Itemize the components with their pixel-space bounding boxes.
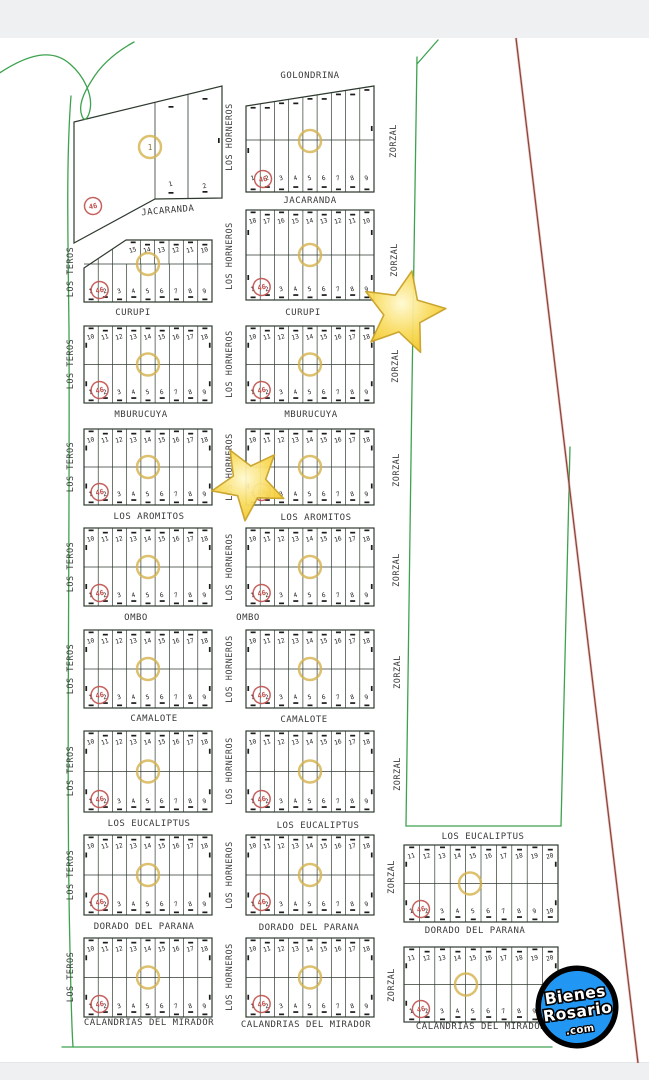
frontage-tick: [322, 330, 327, 332]
frontage-tick: [209, 545, 211, 550]
street-label-vertical: LOS TEROS: [66, 952, 76, 1003]
frontage-tick: [251, 733, 256, 735]
frontage-tick: [146, 940, 151, 942]
frontage-tick: [322, 1011, 327, 1013]
street-label: CURUPI: [285, 308, 321, 318]
frontage-tick: [308, 400, 313, 402]
frontage-tick: [350, 214, 355, 216]
street-label-vertical: LOS HORNEROS: [225, 533, 235, 600]
frontage-tick: [188, 702, 193, 704]
frontage-tick: [188, 806, 193, 808]
frontage-tick: [160, 433, 165, 435]
frontage-tick: [85, 893, 87, 898]
frontage-tick: [548, 849, 553, 851]
frontage-tick: [308, 530, 313, 532]
frontage-tick: [409, 847, 414, 849]
frontage-tick: [247, 647, 249, 652]
frontage-tick: [486, 1016, 491, 1018]
frontage-tick: [174, 733, 179, 735]
stamp-number: 46: [257, 898, 267, 908]
street-label: CURUPI: [115, 308, 151, 318]
frontage-tick: [371, 995, 373, 1000]
blocks-layer: 1214612345678946151413121110123456789461…: [74, 86, 558, 1022]
frontage-tick: [131, 242, 136, 244]
frontage-tick: [336, 912, 341, 914]
frontage-tick: [336, 705, 341, 707]
frontage-tick: [279, 603, 284, 605]
frontage-tick: [251, 297, 256, 299]
frontage-tick: [405, 963, 407, 968]
frontage-tick: [251, 431, 256, 433]
frontage-tick: [247, 789, 249, 794]
frontage-tick: [364, 705, 369, 707]
frontage-tick: [174, 1014, 179, 1016]
frontage-tick: [146, 431, 151, 433]
frontage-tick: [209, 749, 211, 754]
frontage-tick: [202, 632, 207, 634]
frontage-tick: [293, 702, 298, 704]
frontage-tick: [308, 212, 313, 214]
stamp-number: 46: [257, 283, 267, 293]
stamp-number: 46: [416, 905, 426, 915]
block-7-left: 10111213141516171812345678946: [84, 731, 212, 812]
frontage-tick: [160, 1011, 165, 1013]
frontage-tick: [425, 951, 430, 953]
frontage-tick: [202, 809, 207, 811]
block-5-left: 10111213141516171812345678946: [84, 528, 212, 606]
block-9-right: 10111213141516171812345678946: [246, 938, 374, 1017]
frontage-tick: [117, 530, 122, 532]
frontage-tick: [371, 446, 373, 451]
frontage-tick: [336, 809, 341, 811]
frontage-tick: [371, 686, 373, 691]
frontage-tick: [146, 328, 151, 330]
frontage-tick: [425, 849, 430, 851]
frontage-tick: [279, 940, 284, 942]
frontage-tick: [471, 1019, 476, 1021]
frontage-tick: [293, 634, 298, 636]
frontage-tick: [202, 244, 207, 246]
frontage-tick: [209, 446, 211, 451]
frontage-tick: [471, 847, 476, 849]
street-label-vertical: LOS TEROS: [66, 746, 76, 797]
frontage-tick: [293, 806, 298, 808]
frontage-tick: [202, 733, 207, 735]
frontage-tick: [502, 1019, 507, 1021]
stamp-number: 46: [416, 1005, 426, 1015]
frontage-tick: [336, 502, 341, 504]
frontage-tick: [293, 735, 298, 737]
frontage-tick: [279, 733, 284, 735]
frontage-tick: [336, 328, 341, 330]
frontage-tick: [85, 584, 87, 589]
frontage-tick: [293, 433, 298, 435]
frontage-tick: [251, 530, 256, 532]
frontage-tick: [117, 705, 122, 707]
frontage-tick: [89, 328, 94, 330]
frontage-tick: [265, 942, 270, 944]
frontage-tick: [85, 343, 87, 348]
frontage-tick: [85, 545, 87, 550]
frontage-tick: [308, 189, 313, 191]
frontage-tick: [336, 837, 341, 839]
frontage-tick: [188, 397, 193, 399]
frontage-tick: [308, 837, 313, 839]
frontage-tick: [103, 839, 108, 841]
frontage-tick: [308, 632, 313, 634]
frontage-tick: [486, 916, 491, 918]
frontage-tick: [209, 686, 211, 691]
frontage-tick: [247, 381, 249, 386]
frontage-tick: [247, 275, 249, 280]
frontage-tick: [308, 297, 313, 299]
frontage-tick: [146, 400, 151, 402]
zorzal-boundary: [406, 57, 417, 826]
frontage-tick: [471, 919, 476, 921]
frontage-tick: [117, 431, 122, 433]
frontage-tick: [188, 909, 193, 911]
frontage-tick: [350, 532, 355, 534]
street-label-vertical: ZORZAL: [393, 757, 403, 791]
frontage-tick: [89, 603, 94, 605]
frontage-tick: [308, 603, 313, 605]
frontage-tick: [293, 600, 298, 602]
frontage-tick: [322, 433, 327, 435]
frontage-tick: [293, 103, 298, 105]
street-label-vertical: ZORZAL: [389, 124, 399, 158]
frontage-tick: [103, 735, 108, 737]
frontage-tick: [265, 532, 270, 534]
frontage-tick: [117, 632, 122, 634]
frontage-tick: [203, 191, 208, 193]
frontage-tick: [409, 919, 414, 921]
frontage-tick: [117, 912, 122, 914]
frontage-tick: [131, 806, 136, 808]
frontage-tick: [188, 839, 193, 841]
frontage-tick: [251, 912, 256, 914]
frontage-tick: [308, 733, 313, 735]
frontage-tick: [174, 502, 179, 504]
frontage-tick: [131, 397, 136, 399]
frontage-tick: [174, 328, 179, 330]
frontage-tick: [202, 912, 207, 914]
frontage-tick: [202, 603, 207, 605]
frontage-tick: [89, 809, 94, 811]
stamp-number: 46: [95, 1000, 105, 1010]
frontage-tick: [131, 839, 136, 841]
frontage-tick: [279, 400, 284, 402]
frontage-tick: [202, 705, 207, 707]
frontage-tick: [146, 912, 151, 914]
frontage-tick: [293, 186, 298, 188]
frontage-tick: [350, 600, 355, 602]
frontage-tick: [517, 849, 522, 851]
frontage-tick: [350, 186, 355, 188]
frontage-tick: [364, 400, 369, 402]
frontage-tick: [440, 949, 445, 951]
frontage-tick: [350, 634, 355, 636]
frontage-tick: [308, 431, 313, 433]
frontage-tick: [85, 789, 87, 794]
street-label-vertical: ZORZAL: [390, 243, 400, 277]
stamp-number: 46: [95, 386, 105, 396]
frontage-tick: [532, 1019, 537, 1021]
frontage-tick: [265, 330, 270, 332]
frontage-tick: [371, 584, 373, 589]
frontage-tick: [265, 735, 270, 737]
frontage-tick: [364, 530, 369, 532]
frontage-tick: [409, 949, 414, 951]
frontage-tick: [371, 789, 373, 794]
frontage-tick: [131, 532, 136, 534]
frontage-tick: [251, 328, 256, 330]
frontage-tick: [188, 433, 193, 435]
frontage-tick: [89, 632, 94, 634]
frontage-tick: [322, 214, 327, 216]
frontage-tick: [131, 735, 136, 737]
frontage-tick: [202, 328, 207, 330]
frontage-tick: [364, 1014, 369, 1016]
frontage-tick: [247, 230, 249, 235]
frontage-tick: [371, 545, 373, 550]
frontage-tick: [160, 735, 165, 737]
frontage-tick: [336, 530, 341, 532]
frontage-tick: [174, 431, 179, 433]
frontage-tick: [160, 839, 165, 841]
frontage-tick: [174, 705, 179, 707]
frontage-tick: [160, 499, 165, 501]
block-8-left: 10111213141516171812345678946: [84, 835, 212, 915]
frontage-tick: [336, 189, 341, 191]
frontage-tick: [85, 484, 87, 489]
street-label: LOS EUCALIPTUS: [108, 819, 191, 829]
block-3-right: 10111213141516171812345678946: [246, 326, 374, 403]
block-4-left: 10111213141516171812345678946: [84, 429, 212, 505]
frontage-tick: [146, 1014, 151, 1016]
stamp-number: 46: [95, 589, 105, 599]
frontage-tick: [350, 942, 355, 944]
frontage-tick: [247, 686, 249, 691]
frontage-tick: [548, 951, 553, 953]
frontage-tick: [548, 916, 553, 918]
frontage-tick: [209, 853, 211, 858]
frontage-tick: [336, 431, 341, 433]
meander: [0, 42, 134, 119]
frontage-tick: [308, 328, 313, 330]
frontage-tick: [89, 705, 94, 707]
stamp-number: 46: [88, 202, 98, 212]
frontage-tick: [371, 230, 373, 235]
street-label-vertical: LOS HORNEROS: [225, 635, 235, 702]
frontage-tick: [364, 837, 369, 839]
frontage-tick: [532, 919, 537, 921]
frontage-tick: [209, 995, 211, 1000]
screenshot-root: 1214612345678946151413121110123456789461…: [0, 0, 649, 1080]
frontage-tick: [169, 192, 174, 194]
frontage-tick: [251, 809, 256, 811]
frontage-tick: [131, 600, 136, 602]
frontage-tick: [247, 893, 249, 898]
frontage-tick: [202, 502, 207, 504]
frontage-tick: [279, 705, 284, 707]
block-3-left: 10111213141516171812345678946: [84, 326, 212, 403]
frontage-tick: [279, 212, 284, 214]
block-2-left: 15141312111012345678946: [84, 240, 212, 302]
frontage-tick: [555, 862, 557, 867]
block-5-right: 10111213141516171812345678946: [246, 528, 374, 606]
frontage-tick: [371, 955, 373, 960]
frontage-tick: [336, 632, 341, 634]
frontage-tick: [293, 294, 298, 296]
frontage-tick: [160, 600, 165, 602]
frontage-tick: [169, 106, 174, 108]
frontage-tick: [89, 1014, 94, 1016]
street-label-vertical: ZORZAL: [391, 349, 401, 383]
frontage-tick: [89, 299, 94, 301]
frontage-tick: [350, 330, 355, 332]
frontage-tick: [89, 912, 94, 914]
frontage-tick: [364, 89, 369, 91]
frontage-tick: [131, 909, 136, 911]
frontage-tick: [202, 1014, 207, 1016]
frontage-tick: [146, 632, 151, 634]
street-label-vertical: LOS HORNEROS: [225, 841, 235, 908]
frontage-tick: [203, 98, 208, 100]
frontage-tick: [279, 328, 284, 330]
frontage-tick: [117, 809, 122, 811]
frontage-tick: [247, 545, 249, 550]
frontage-tick: [350, 839, 355, 841]
frontage-tick: [308, 809, 313, 811]
frontage-tick: [85, 995, 87, 1000]
frontage-tick: [364, 502, 369, 504]
frontage-tick: [350, 702, 355, 704]
frontage-tick: [174, 912, 179, 914]
frontage-tick: [247, 749, 249, 754]
frontage-tick: [279, 297, 284, 299]
frontage-tick: [293, 397, 298, 399]
frontage-tick: [117, 502, 122, 504]
frontage-tick: [247, 995, 249, 1000]
street-label-vertical: LOS HORNEROS: [225, 943, 235, 1010]
frontage-tick: [209, 789, 211, 794]
frontage-tick: [160, 634, 165, 636]
frontage-tick: [293, 214, 298, 216]
stamp-number: 46: [95, 795, 105, 805]
frontage-tick: [350, 806, 355, 808]
frontage-tick: [279, 502, 284, 504]
frontage-tick: [532, 847, 537, 849]
frontage-tick: [174, 244, 179, 246]
street-label: DORADO DEL PARANA: [94, 922, 195, 932]
frontage-tick: [247, 148, 249, 153]
street-label: LOS AROMITOS: [280, 513, 351, 523]
frontage-tick: [350, 1011, 355, 1013]
frontage-tick: [103, 532, 108, 534]
frontage-tick: [322, 909, 327, 911]
frontage-tick: [555, 963, 557, 968]
frontage-tick: [146, 705, 151, 707]
frontage-tick: [502, 847, 507, 849]
stamp-number: 46: [257, 386, 267, 396]
frontage-tick: [293, 532, 298, 534]
frontage-tick: [117, 837, 122, 839]
frontage-tick: [209, 955, 211, 960]
street-label-vertical: LOS TEROS: [66, 442, 76, 493]
frontage-tick: [131, 702, 136, 704]
frontage-tick: [247, 343, 249, 348]
frontage-tick: [265, 839, 270, 841]
frontage-tick: [405, 900, 407, 905]
frontage-tick: [364, 297, 369, 299]
frontage-tick: [336, 400, 341, 402]
street-label: CALANDRIAS DEL MIRADOR: [84, 1018, 214, 1028]
street-label: CALANDRIAS DEL MIRADOR: [241, 1020, 371, 1030]
frontage-tick: [251, 705, 256, 707]
frontage-tick: [145, 244, 150, 246]
stamp-number: 46: [257, 1000, 267, 1010]
frontage-tick: [131, 296, 136, 298]
frontage-tick: [279, 189, 284, 191]
frontage-tick: [308, 1014, 313, 1016]
street-label: JACARANDA: [283, 196, 336, 206]
frontage-tick: [293, 909, 298, 911]
frontage-tick: [265, 214, 270, 216]
frontage-tick: [209, 343, 211, 348]
frontage-tick: [371, 275, 373, 280]
frontage-tick: [455, 849, 460, 851]
frontage-tick: [322, 806, 327, 808]
frontage-tick: [251, 837, 256, 839]
street-label: OMBO: [236, 613, 260, 623]
block-7-right: 10111213141516171812345678946: [246, 731, 374, 812]
frontage-tick: [89, 530, 94, 532]
frontage-tick: [146, 837, 151, 839]
street-label-vertical: ZORZAL: [392, 453, 402, 487]
block-9-left: 10111213141516171812345678946: [84, 938, 212, 1017]
frontage-tick: [279, 837, 284, 839]
frontage-tick: [209, 484, 211, 489]
frontage-tick: [174, 603, 179, 605]
frontage-tick: [188, 499, 193, 501]
frontage-tick: [146, 299, 151, 301]
street-label: GOLONDRINA: [280, 71, 339, 81]
subdivision-plan: 1214612345678946151413121110123456789461…: [0, 0, 649, 1080]
frontage-tick: [188, 735, 193, 737]
frontage-tick: [265, 107, 270, 109]
frontage-tick: [85, 749, 87, 754]
frontage-tick: [350, 397, 355, 399]
frontage-tick: [517, 916, 522, 918]
frontage-tick: [251, 212, 256, 214]
frontage-tick: [89, 400, 94, 402]
frontage-tick: [308, 912, 313, 914]
frontage-tick: [146, 530, 151, 532]
street-label-vertical: LOS TEROS: [66, 850, 76, 901]
street-label-vertical: LOS HORNEROS: [225, 737, 235, 804]
frontage-tick: [174, 530, 179, 532]
frontage-tick: [89, 733, 94, 735]
frontage-tick: [364, 189, 369, 191]
frontage-tick: [251, 107, 256, 109]
frontage-tick: [188, 600, 193, 602]
block-6-right: 10111213141516171812345678946: [246, 630, 374, 708]
frontage-tick: [371, 484, 373, 489]
street-label-vertical: LOS TEROS: [66, 542, 76, 593]
frontage-tick: [209, 893, 211, 898]
frontage-tick: [371, 647, 373, 652]
frontage-tick: [322, 532, 327, 534]
